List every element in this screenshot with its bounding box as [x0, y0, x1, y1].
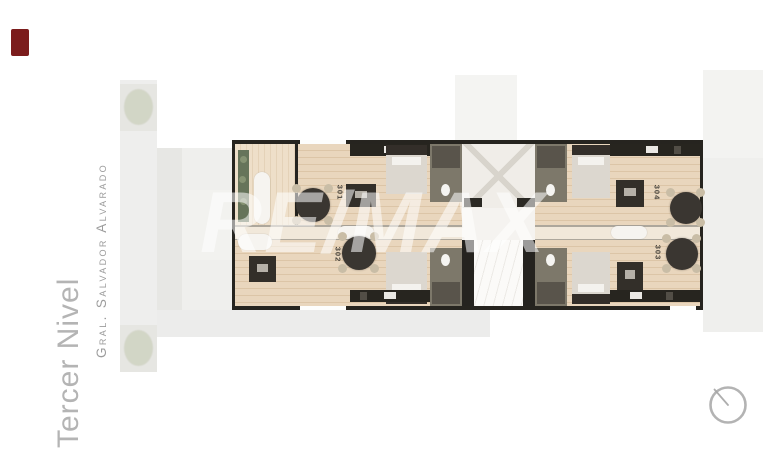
core-upper-extension [455, 75, 517, 141]
page-canvas: Tercer Nivel Gral. Salvador Alvarado [0, 0, 768, 452]
tree-canopy [124, 330, 153, 366]
compass-icon [705, 382, 751, 428]
bed-headboard [386, 145, 427, 155]
level-badge [11, 29, 29, 56]
sidewalk [157, 310, 490, 337]
sink [384, 292, 396, 299]
window [300, 306, 346, 310]
sink [630, 292, 642, 299]
shower [432, 146, 460, 168]
dining-table [666, 238, 698, 270]
desk [616, 180, 644, 207]
stove [666, 292, 673, 300]
kitchen-counter [610, 290, 700, 302]
watermark: RE/MAX [200, 180, 600, 266]
building-patch [703, 70, 763, 158]
neighbor-building-right [703, 70, 763, 332]
tree-canopy [124, 89, 153, 125]
building-patch [157, 148, 182, 310]
stove [360, 292, 367, 300]
level-title: Tercer Nivel [52, 278, 86, 448]
chairs [662, 234, 671, 243]
dining-table [670, 192, 702, 224]
unit-label-304: 304 [652, 185, 661, 201]
stove [674, 146, 681, 154]
desk [617, 262, 643, 290]
kitchen-counter [350, 290, 430, 302]
tree-icon [120, 325, 157, 372]
shower [432, 282, 460, 304]
shower [537, 282, 565, 304]
window [670, 306, 696, 310]
bed-headboard [572, 294, 610, 304]
tree-icon [120, 84, 157, 131]
street-strip [120, 80, 157, 372]
wall-right [700, 140, 703, 310]
fridge [646, 146, 658, 153]
kitchen-counter [610, 144, 700, 156]
terrace-bench [611, 226, 647, 239]
window [300, 140, 346, 144]
unit-label-303: 303 [653, 245, 662, 261]
plant-icon [240, 156, 247, 163]
chairs [666, 188, 675, 197]
shower [537, 146, 565, 168]
bed-headboard [572, 145, 610, 155]
street-name-label: Gral. Salvador Alvarado [94, 163, 109, 358]
